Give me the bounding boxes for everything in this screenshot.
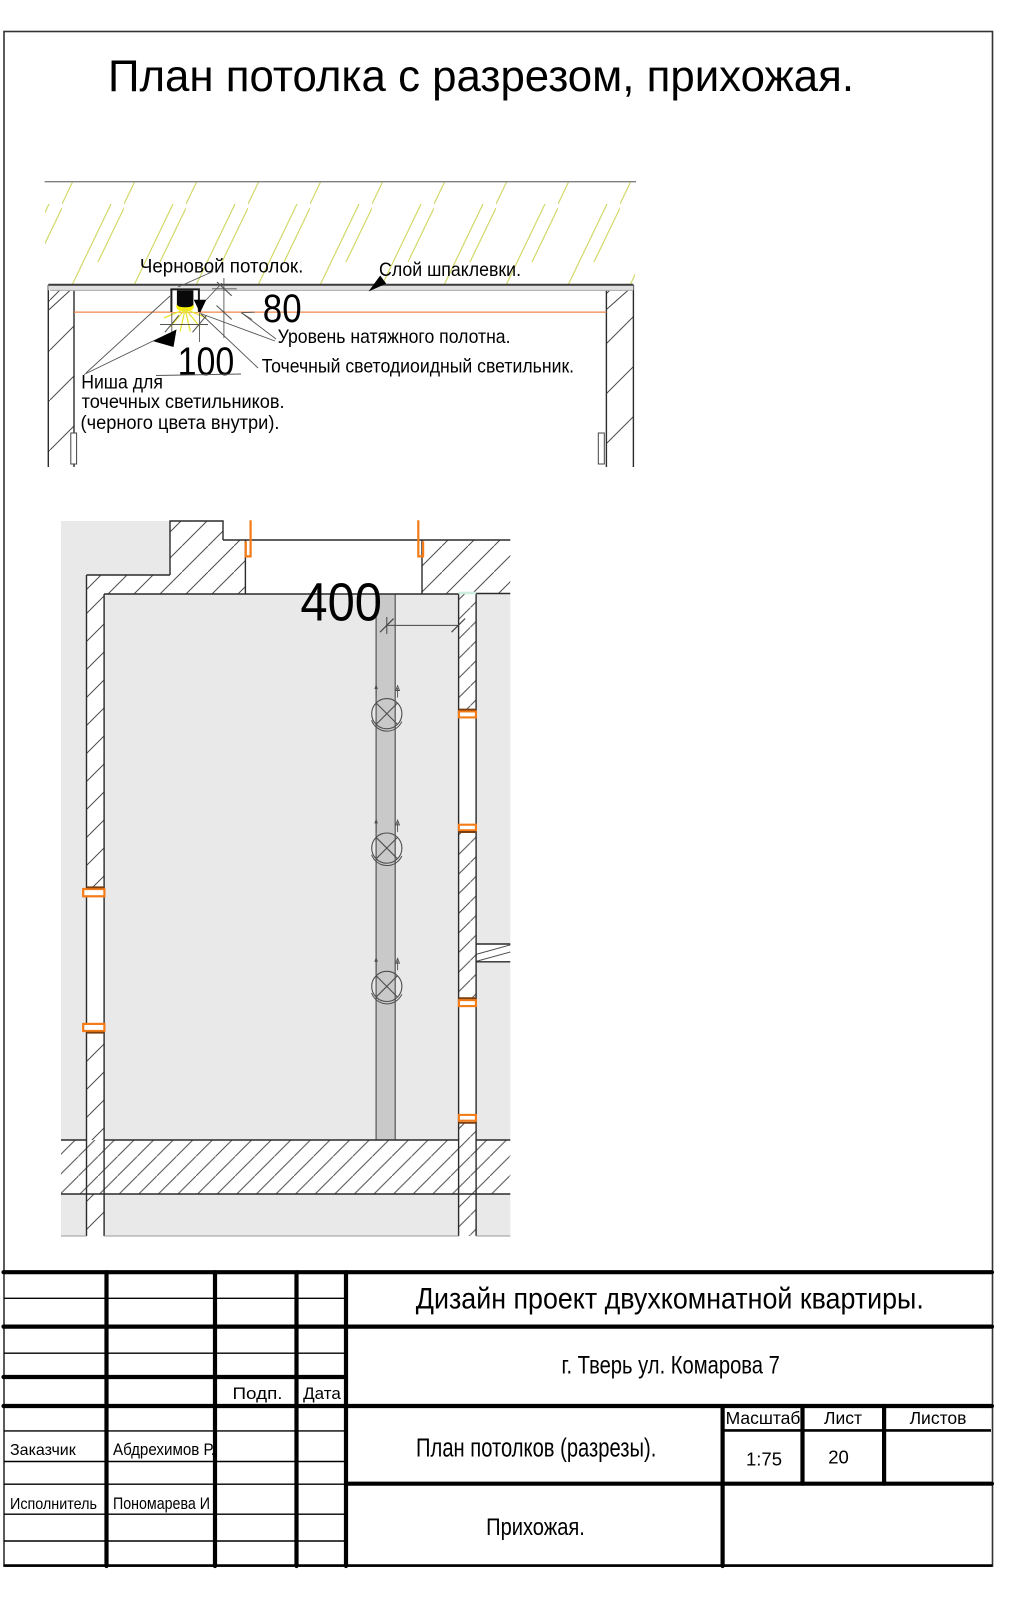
svg-text:Черновой потолок.: Черновой потолок. xyxy=(140,255,303,277)
svg-text:Масштаб: Масштаб xyxy=(726,1408,801,1428)
svg-text:20: 20 xyxy=(828,1447,849,1468)
svg-text:Листов: Листов xyxy=(910,1408,967,1428)
svg-text:1:75: 1:75 xyxy=(746,1449,782,1470)
svg-text:Пономарева И: Пономарева И xyxy=(113,1495,210,1513)
svg-text:План потолков (разрезы).: План потолков (разрезы). xyxy=(416,1435,656,1463)
svg-text:Слой шпаклевки.: Слой шпаклевки. xyxy=(379,259,521,281)
svg-text:400: 400 xyxy=(300,573,382,633)
svg-text:80: 80 xyxy=(263,287,302,331)
svg-text:Исполнитель: Исполнитель xyxy=(10,1496,97,1513)
svg-text:Подп.: Подп. xyxy=(233,1384,283,1403)
svg-text:100: 100 xyxy=(178,340,235,384)
svg-text:Дата: Дата xyxy=(303,1384,341,1403)
svg-text:точечных светильников.: точечных светильников. xyxy=(82,392,285,413)
svg-text:Точечный светодиоидный светиль: Точечный светодиоидный светильник. xyxy=(262,356,574,378)
svg-text:Прихожая.: Прихожая. xyxy=(486,1514,585,1541)
svg-text:Лист: Лист xyxy=(824,1408,862,1428)
svg-text:Абдрехимов Р.: Абдрехимов Р. xyxy=(113,1441,215,1459)
svg-text:Ниша для: Ниша для xyxy=(81,373,163,394)
svg-text:Дизайн проект двухкомнатной кв: Дизайн проект двухкомнатной квартиры. xyxy=(416,1282,924,1315)
svg-text:Уровень натяжного полотна.: Уровень натяжного полотна. xyxy=(278,326,511,348)
svg-text:Заказчик: Заказчик xyxy=(10,1442,77,1459)
svg-text:(черного цвета внутри).: (черного цвета внутри). xyxy=(81,413,280,434)
svg-text:План потолка с разрезом, прихо: План потолка с разрезом, прихожая. xyxy=(108,52,854,101)
svg-text:г. Тверь ул. Комарова 7: г. Тверь ул. Комарова 7 xyxy=(562,1352,780,1379)
